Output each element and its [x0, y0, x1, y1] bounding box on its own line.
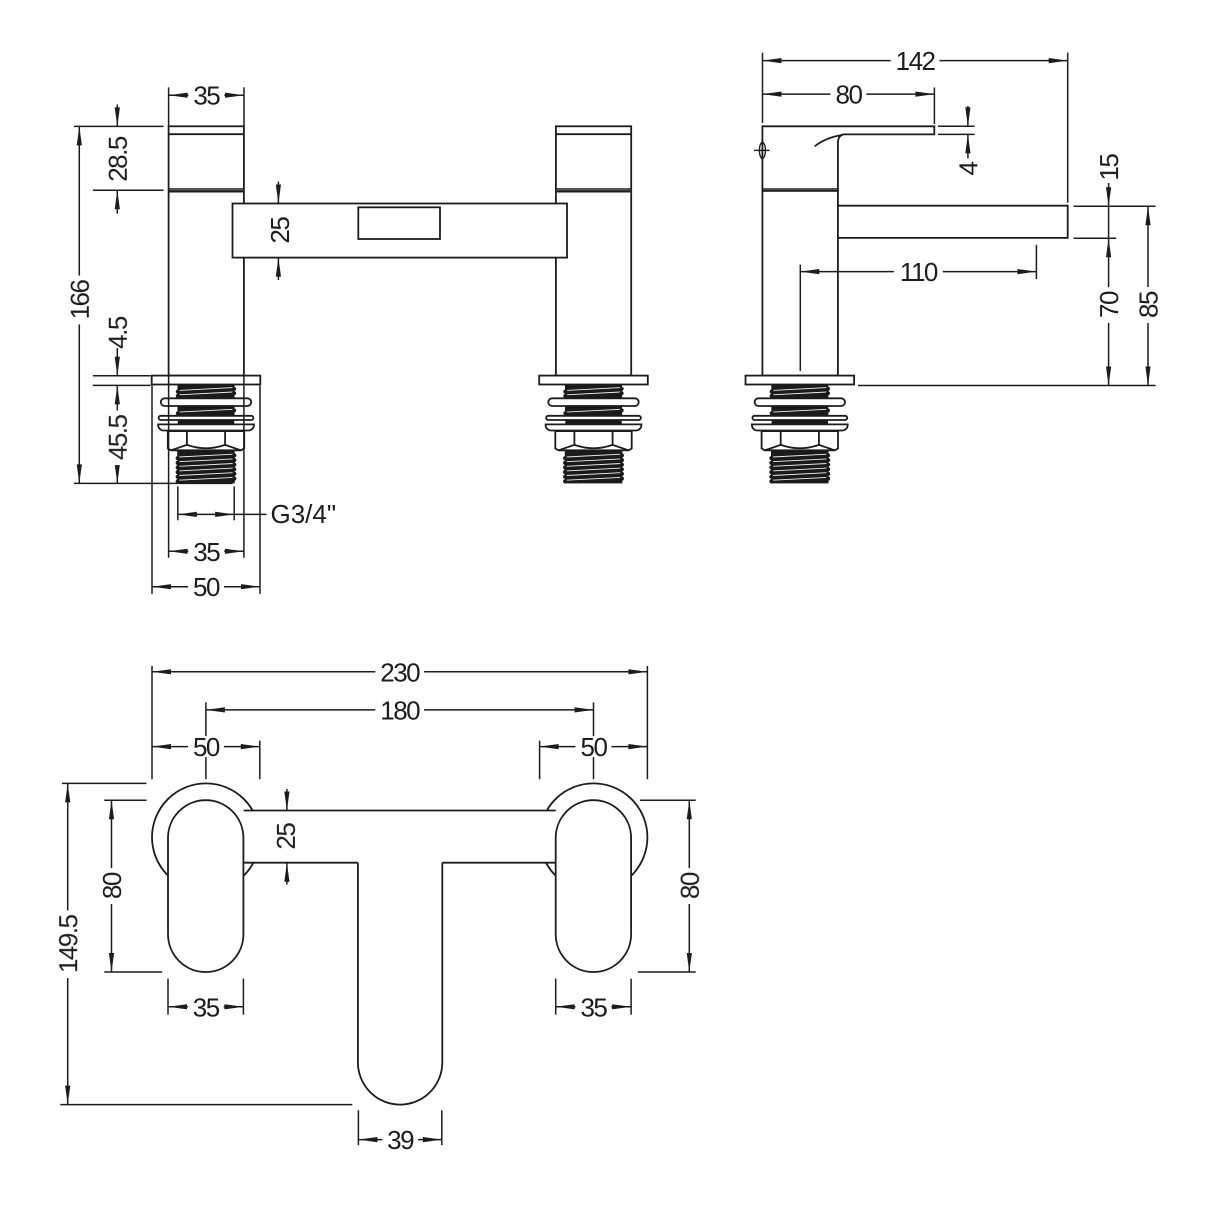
svg-text:80: 80: [836, 80, 863, 110]
svg-text:4.5: 4.5: [103, 316, 133, 349]
svg-text:35: 35: [580, 992, 607, 1022]
svg-text:180: 180: [380, 695, 420, 725]
svg-text:25: 25: [271, 823, 301, 850]
svg-text:80: 80: [675, 872, 705, 899]
svg-text:15: 15: [1094, 154, 1124, 181]
svg-text:50: 50: [193, 732, 220, 762]
svg-text:39: 39: [387, 1125, 414, 1155]
svg-text:4: 4: [953, 161, 983, 175]
svg-text:50: 50: [193, 572, 220, 602]
svg-text:50: 50: [581, 732, 608, 762]
svg-text:110: 110: [900, 257, 938, 287]
svg-text:166: 166: [65, 280, 95, 320]
svg-text:35: 35: [193, 537, 220, 567]
svg-text:25: 25: [265, 217, 295, 244]
svg-text:45.5: 45.5: [103, 414, 133, 460]
svg-text:230: 230: [380, 657, 420, 687]
svg-text:70: 70: [1094, 291, 1124, 318]
svg-text:80: 80: [97, 872, 127, 899]
svg-text:35: 35: [193, 81, 220, 111]
svg-text:142: 142: [896, 46, 936, 76]
svg-text:85: 85: [1134, 291, 1164, 318]
svg-text:35: 35: [193, 992, 220, 1022]
svg-text:149.5: 149.5: [53, 914, 83, 973]
svg-text:G3/4": G3/4": [271, 499, 337, 529]
svg-text:28.5: 28.5: [103, 136, 133, 182]
